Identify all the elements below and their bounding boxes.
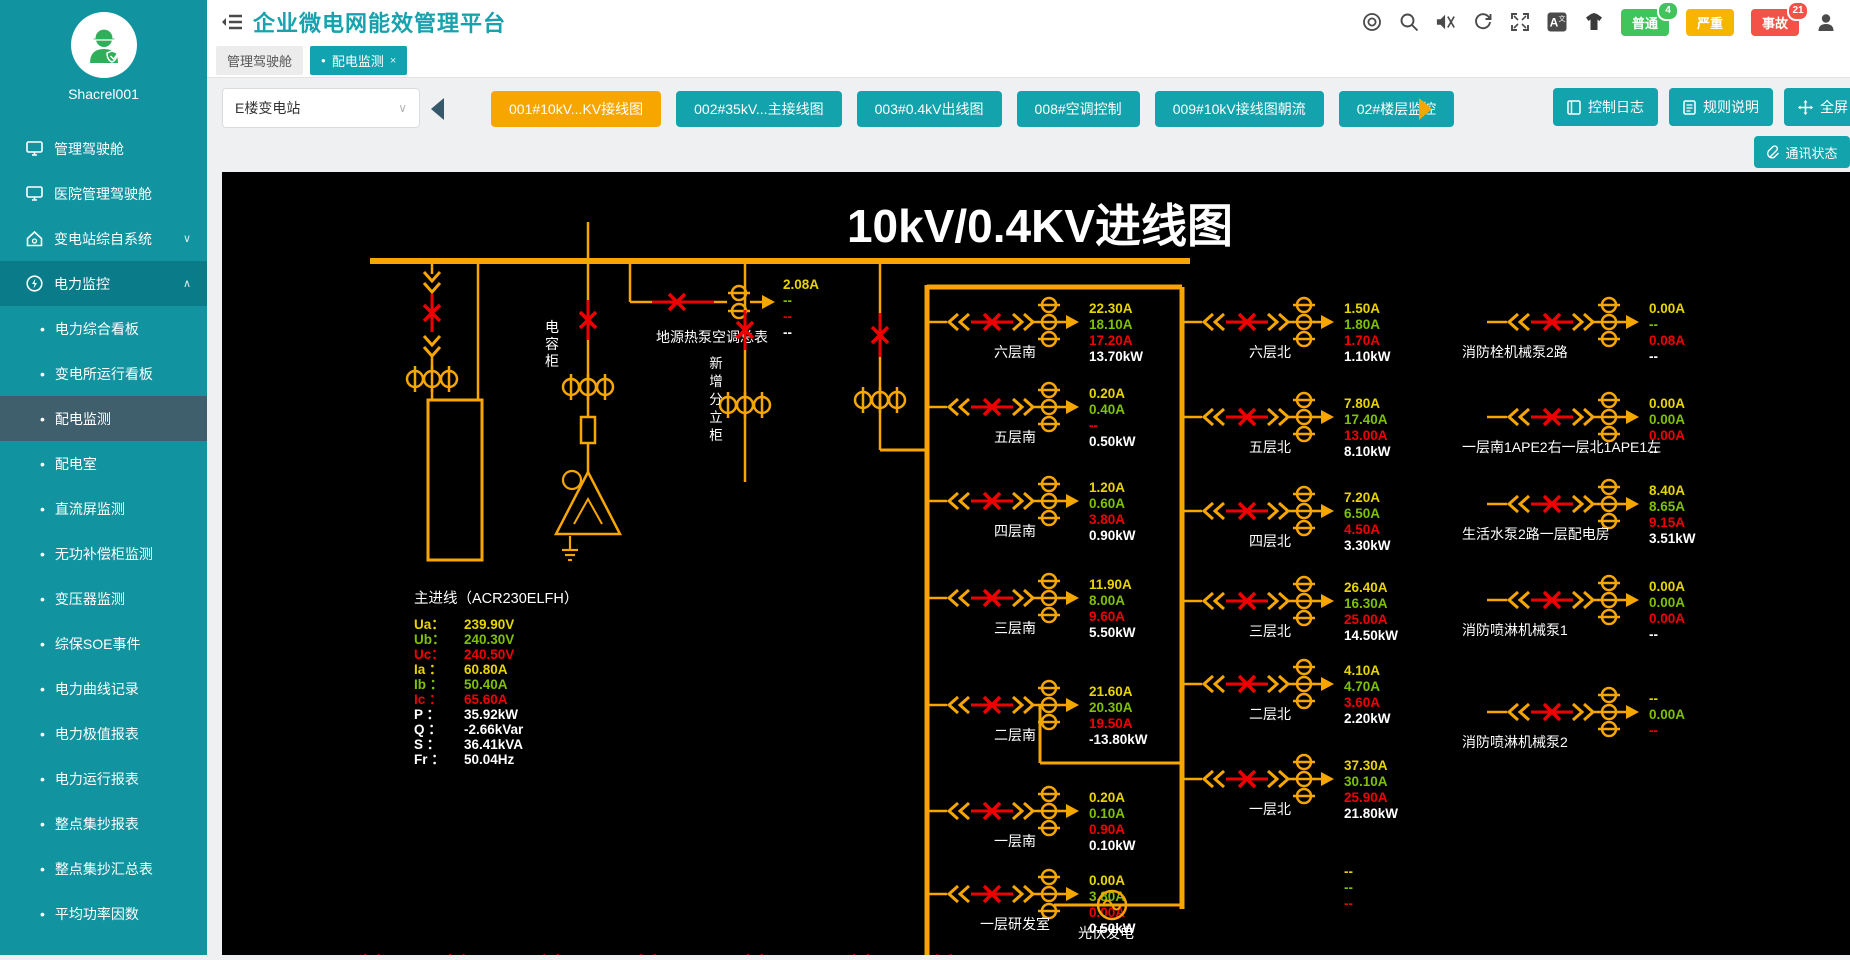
telemetry-value: 8.65A [1649, 499, 1685, 514]
sidebar-subitem-label: 电力曲线记录 [55, 679, 139, 699]
meter-title: 主进线（ACR230ELFH） [414, 590, 578, 607]
feeder-label: 六层南 [994, 344, 1036, 360]
meter-row-value: 240.50V [464, 647, 514, 662]
symbol [1204, 771, 1213, 787]
branch-label: 柜 [545, 353, 559, 369]
symbol [1024, 314, 1033, 330]
symbol [1509, 592, 1518, 608]
symbol [1013, 493, 1022, 509]
sidebar-item-label: 变电站综自系统 [54, 229, 152, 249]
telemetry-value: -- [783, 309, 792, 324]
meter-row-label: Fr ： [414, 752, 445, 767]
feeder-label: 二层南 [994, 727, 1036, 743]
station-select[interactable]: E楼变电站 ∨ [222, 88, 420, 128]
symbol [1024, 399, 1033, 415]
home-icon [26, 230, 43, 247]
telemetry-value: 0.00A [1649, 412, 1685, 427]
feeder-label: 五层北 [1249, 439, 1291, 455]
sidebar-subitem-直流屏监测[interactable]: •直流屏监测 [0, 486, 207, 531]
comm-status-button[interactable]: 通讯状态 [1754, 136, 1850, 168]
feeder-label: 生活水泵2路一层配电房 [1462, 526, 1610, 542]
sidebar: Shacrel001 管理驾驶舱医院管理驾驶舱变电站综自系统∨电力监控∧•电力综… [0, 0, 207, 955]
telemetry-value: 1.10kW [1344, 349, 1391, 364]
telemetry-value: 3.80A [1089, 512, 1125, 527]
sidebar-nav: 管理驾驶舱医院管理驾驶舱变电站综自系统∨电力监控∧•电力综合看板•变电所运行看板… [0, 126, 207, 936]
symbol [1573, 704, 1582, 720]
control-log-button[interactable]: 控制日志 [1553, 88, 1658, 126]
telemetry-value: -13.80kW [1089, 732, 1148, 747]
diagram-tab-002#35kV...主接线图[interactable]: 002#35kV...主接线图 [676, 91, 841, 127]
flow-arrow-icon [1321, 504, 1334, 518]
meter-row-value: 60.80A [464, 662, 508, 677]
alarm-badge-accident[interactable]: 事故 21 [1751, 9, 1799, 36]
symbol [424, 283, 440, 292]
telemetry-value: 25.00A [1344, 612, 1388, 627]
sidebar-subitem-label: 平均功率因数 [55, 904, 139, 924]
feeder-label: 六层北 [1249, 344, 1291, 360]
fullscreen-button[interactable]: 全屏 [1784, 88, 1850, 126]
toolbar-actions: 控制日志 规则说明 全屏 [1553, 88, 1850, 126]
telemetry-value: -- [1089, 418, 1098, 433]
flow-arrow-icon [1626, 705, 1639, 719]
meter-row-value: 65.60A [464, 692, 508, 707]
telemetry-value: 0.90A [1089, 822, 1125, 837]
flow-arrow-icon [1066, 804, 1079, 818]
header-actions: A 文 普通 4 严重 事故 21 [1362, 9, 1836, 36]
telemetry-value: 8.10kW [1344, 444, 1391, 459]
symbol [1509, 314, 1518, 330]
telemetry-value: -- [1649, 691, 1658, 706]
theme-shirt-icon[interactable] [1584, 12, 1604, 32]
sidebar-subitem-电力极值报表[interactable]: •电力极值报表 [0, 711, 207, 756]
symbol [1013, 399, 1022, 415]
sidebar-item-变电站综自系统[interactable]: 变电站综自系统∨ [0, 216, 207, 261]
symbol [1013, 697, 1022, 713]
sidebar-item-label: 管理驾驶舱 [54, 139, 124, 159]
sidebar-subitem-配电室[interactable]: •配电室 [0, 441, 207, 486]
worker-avatar-icon [82, 23, 126, 67]
meter-row-label: Ic ： [414, 692, 443, 707]
telemetry-value: 4.70A [1344, 679, 1380, 694]
telemetry-value: 0.00A [1649, 579, 1685, 594]
telemetry-value: 9.60A [1089, 609, 1125, 624]
symbol [960, 886, 969, 902]
dashboard-icon [26, 140, 43, 157]
bullet-icon: • [40, 906, 45, 922]
tabs-scroll-left-arrow[interactable] [431, 98, 444, 120]
menu-fold-icon[interactable] [221, 13, 243, 31]
branch-label: 增 [709, 374, 723, 389]
telemetry-value: -- [1344, 880, 1353, 895]
telemetry-value: 2.20kW [1344, 711, 1391, 726]
flow-arrow-icon [762, 295, 775, 309]
symbol [424, 347, 440, 356]
branch-label: 新 [709, 356, 723, 371]
telemetry-value: 13.70kW [1089, 349, 1143, 364]
symbol [1573, 409, 1582, 425]
alarm-count-accident: 21 [1787, 1, 1809, 21]
symbol [1584, 704, 1593, 720]
meter-row-label: Ib ： [414, 677, 443, 692]
meter-row-value: 239.90V [464, 617, 514, 632]
active-dot: ● [321, 56, 326, 65]
telemetry-value: 16.30A [1344, 596, 1388, 611]
symbol [960, 803, 969, 819]
symbol [574, 499, 602, 524]
telemetry-value: 37.30A [1344, 758, 1388, 773]
main-area: 企业微电网能效管理平台 [207, 0, 1850, 955]
sidebar-subitem-电力运行报表[interactable]: •电力运行报表 [0, 756, 207, 801]
telemetry-value: 20.30A [1089, 700, 1133, 715]
telemetry-value: 8.40A [1649, 483, 1685, 498]
telemetry-value: 17.40A [1344, 412, 1388, 427]
symbol [1268, 676, 1277, 692]
chevron-down-icon: ∨ [183, 232, 191, 245]
meter-row-value: 36.41kVA [464, 737, 523, 752]
chevron-up-icon: ∧ [183, 277, 191, 290]
bullet-icon: • [40, 726, 45, 742]
symbol [1024, 493, 1033, 509]
symbol [949, 314, 958, 330]
sidebar-item-管理驾驶舱[interactable]: 管理驾驶舱 [0, 126, 207, 171]
telemetry-value: 2.08A [783, 277, 819, 292]
meter-row-label: P ： [414, 707, 440, 722]
sidebar-subitem-label: 无功补偿柜监测 [55, 544, 153, 564]
sidebar-subitem-label: 配电监测 [55, 409, 111, 429]
diagram-tab-009#10kV接线图朝流[interactable]: 009#10kV接线图朝流 [1155, 91, 1324, 127]
username: Shacrel001 [0, 86, 207, 102]
telemetry-value: 0.00A [1649, 396, 1685, 411]
flow-arrow-icon [1626, 593, 1639, 607]
feeder-label: 一层北 [1249, 801, 1291, 817]
sidebar-subitem-平均功率因数[interactable]: •平均功率因数 [0, 891, 207, 936]
flow-arrow-icon [1066, 698, 1079, 712]
telemetry-value: -- [1344, 896, 1353, 911]
feeder-label: 三层南 [994, 620, 1036, 636]
symbol [1520, 409, 1529, 425]
symbol [1215, 503, 1224, 519]
branch-label: 立 [709, 410, 723, 425]
sidebar-item-医院管理驾驶舱[interactable]: 医院管理驾驶舱 [0, 171, 207, 216]
power-icon [26, 275, 43, 292]
telemetry-value: 0.40A [1089, 402, 1125, 417]
feeder-label: 消防喷淋机械泵1 [1462, 622, 1568, 638]
flow-arrow-icon [1626, 497, 1639, 511]
bullet-icon: • [40, 771, 45, 787]
telemetry-value: 7.20A [1344, 490, 1380, 505]
sidebar-item-label: 医院管理驾驶舱 [54, 184, 152, 204]
telemetry-value: 0.00A [1649, 595, 1685, 610]
telemetry-value: 0.00A [1649, 301, 1685, 316]
telemetry-value: 21.80kW [1344, 806, 1398, 821]
symbol [1573, 592, 1582, 608]
meter-row-label: Q ： [414, 722, 442, 737]
telemetry-value: 17.20A [1089, 333, 1133, 348]
symbol [1573, 496, 1582, 512]
diagram-tab-003#0.4kV出线图[interactable]: 003#0.4kV出线图 [857, 91, 1002, 127]
telemetry-value: 3.60A [1344, 695, 1380, 710]
symbol [1268, 771, 1277, 787]
workspace-tabs: 管理驾驶舱 ● 配电监测 × [207, 44, 1850, 78]
symbol [1215, 593, 1224, 609]
close-tab-icon[interactable]: × [390, 55, 396, 67]
symbol [1584, 314, 1593, 330]
sidebar-subitem-label: 变压器监测 [55, 589, 125, 609]
meter-row-value: -2.66kVar [464, 722, 524, 737]
diagram-title: 10kV/0.4KV进线图 [847, 200, 1233, 252]
bullet-icon: • [40, 861, 45, 877]
meter-row-value: 50.40A [464, 677, 508, 692]
flow-arrow-icon [1066, 315, 1079, 329]
telemetry-value: 0.20A [1089, 790, 1125, 805]
telemetry-value: -- [1344, 864, 1353, 879]
symbol [1584, 592, 1593, 608]
winding-symbol [563, 471, 581, 489]
symbol [949, 399, 958, 415]
symbol [1268, 503, 1277, 519]
feeder-label: 消防栓机械泵2路 [1462, 344, 1568, 360]
feeder-label: 一层研发室 [980, 916, 1050, 932]
telemetry-value: 4.10A [1344, 663, 1380, 678]
telemetry-value: 25.90A [1344, 790, 1388, 805]
symbol [1573, 314, 1582, 330]
symbol [960, 493, 969, 509]
svg-text:A: A [1550, 16, 1559, 30]
meter-row-label: Ua： [414, 617, 445, 632]
telemetry-value: 0.20A [1089, 386, 1125, 401]
telemetry-value: 6.50A [1344, 506, 1380, 521]
sidebar-subitem-label: 直流屏监测 [55, 499, 125, 519]
symbol [1013, 803, 1022, 819]
telemetry-value: -- [783, 325, 792, 340]
cabinet-box [428, 400, 482, 560]
symbol [1520, 314, 1529, 330]
symbol [1024, 590, 1033, 606]
symbol [1024, 697, 1033, 713]
tabs-scroll-right-arrow[interactable] [1419, 98, 1432, 120]
telemetry-value: 18.10A [1089, 317, 1133, 332]
flow-arrow-icon [1321, 410, 1334, 424]
symbol [1215, 676, 1224, 692]
telemetry-value: 0.90kW [1089, 528, 1136, 543]
sidebar-subitem-整点集抄报表[interactable]: •整点集抄报表 [0, 801, 207, 846]
sidebar-subitem-配电监测[interactable]: •配电监测 [0, 396, 207, 441]
branch-label: 分 [709, 392, 723, 407]
avatar[interactable] [71, 12, 137, 78]
fuse-symbol [581, 417, 595, 443]
sidebar-subitem-label: 配电室 [55, 454, 97, 474]
symbol [1215, 409, 1224, 425]
meter-row-label: Uc： [414, 647, 445, 662]
symbol [1279, 676, 1288, 692]
telemetry-value: 3.30kW [1344, 538, 1391, 553]
telemetry-value: 0.00A [1649, 707, 1685, 722]
telemetry-value: 8.00A [1089, 593, 1125, 608]
telemetry-value: 1.20A [1089, 480, 1125, 495]
diagram-tab-001#10kV...KV接线图[interactable]: 001#10kV...KV接线图 [491, 91, 661, 127]
symbol [1279, 314, 1288, 330]
meter-row-value: 50.04Hz [464, 752, 515, 767]
flow-arrow-icon [1321, 315, 1334, 329]
flow-arrow-icon [1066, 400, 1079, 414]
bullet-icon: • [40, 456, 45, 472]
telemetry-value: 9.15A [1649, 515, 1685, 530]
record-icon[interactable] [1362, 12, 1382, 32]
telemetry-value: 0.00A [1089, 873, 1125, 888]
diagram-canvas: 10kV/0.4KV进线图电容柜2.08A------地源热泵空调总表新增分立柜… [222, 172, 1850, 955]
diagram-tab-02#楼层监控[interactable]: 02#楼层监控 [1339, 91, 1454, 127]
symbol [949, 493, 958, 509]
meter-row-value: 35.92kW [464, 707, 518, 722]
single-line-diagram: 10kV/0.4KV进线图电容柜2.08A------地源热泵空调总表新增分立柜… [222, 172, 1850, 955]
branch-label: 容 [545, 336, 559, 352]
feeder-label: 光伏发电 [1078, 925, 1134, 941]
meter-row-value: 240.30V [464, 632, 514, 647]
feeder-label: 四层南 [994, 523, 1036, 539]
sidebar-subitem-无功补偿柜监测[interactable]: •无功补偿柜监测 [0, 531, 207, 576]
symbol [1204, 593, 1213, 609]
symbol [949, 886, 958, 902]
rules-button[interactable]: 规则说明 [1669, 88, 1773, 126]
telemetry-value: -- [783, 293, 792, 308]
sidebar-subitem-综保SOE事件[interactable]: •综保SOE事件 [0, 621, 207, 666]
sidebar-subitem-label: 电力极值报表 [55, 724, 139, 744]
meter-row-label: S ： [414, 737, 440, 752]
telemetry-value: 0.50kW [1089, 434, 1136, 449]
sidebar-item-电力监控[interactable]: 电力监控∧ [0, 261, 207, 306]
expand-icon [1798, 100, 1813, 115]
symbol [1509, 496, 1518, 512]
fullscreen-icon[interactable] [1510, 12, 1530, 32]
flow-arrow-icon [1321, 772, 1334, 786]
sidebar-subitem-变电所运行看板[interactable]: •变电所运行看板 [0, 351, 207, 396]
symbol [949, 697, 958, 713]
sidebar-subitem-label: 电力运行报表 [55, 769, 139, 789]
flow-arrow-icon [1321, 677, 1334, 691]
app-title: 企业微电网能效管理平台 [253, 6, 506, 38]
symbol [1509, 409, 1518, 425]
sidebar-subitem-label: 整点集抄报表 [55, 814, 139, 834]
sidebar-subitem-电力综合看板[interactable]: •电力综合看板 [0, 306, 207, 351]
symbol [556, 472, 620, 534]
svg-text:文: 文 [1558, 14, 1565, 23]
telemetry-value: 5.50kW [1089, 625, 1136, 640]
symbol [1204, 409, 1213, 425]
telemetry-value: 19.50A [1089, 716, 1133, 731]
symbol [1520, 496, 1529, 512]
telemetry-value: 13.00A [1344, 428, 1388, 443]
symbol [1204, 676, 1213, 692]
bullet-icon: • [40, 321, 45, 337]
sidebar-subitem-电力曲线记录[interactable]: •电力曲线记录 [0, 666, 207, 711]
bullet-icon: • [40, 411, 45, 427]
telemetry-value: -- [1649, 627, 1658, 642]
sidebar-subitem-label: 变电所运行看板 [55, 364, 153, 384]
alarm-badge-normal[interactable]: 普通 4 [1621, 9, 1669, 36]
bullet-icon: • [40, 816, 45, 832]
symbol [1024, 886, 1033, 902]
symbol [1279, 771, 1288, 787]
symbol [1584, 409, 1593, 425]
doc-icon [1683, 100, 1696, 115]
symbol [1520, 592, 1529, 608]
telemetry-value: 0.60A [1089, 496, 1125, 511]
sidebar-subitem-整点集抄汇总表[interactable]: •整点集抄汇总表 [0, 846, 207, 891]
user-icon[interactable] [1816, 12, 1836, 32]
symbol [1013, 314, 1022, 330]
feeder-label: 四层北 [1249, 533, 1291, 549]
feeder-label: 消防喷淋机械泵2 [1462, 734, 1568, 750]
link-icon [1766, 145, 1779, 159]
symbol [1584, 496, 1593, 512]
feeder-label: 一层南1APE2右一层北1APE1左 [1462, 439, 1661, 455]
bullet-icon: • [40, 366, 45, 382]
bullet-icon: • [40, 546, 45, 562]
translate-icon[interactable]: A 文 [1547, 12, 1567, 32]
bullet-icon: • [40, 681, 45, 697]
meter-row-label: Ub： [414, 632, 446, 647]
dashboard-icon [26, 185, 43, 202]
bullet-icon: • [40, 591, 45, 607]
symbol [1215, 771, 1224, 787]
telemetry-value: -- [1649, 349, 1658, 364]
branch-label: 柜 [709, 428, 723, 443]
telemetry-value: 0.10A [1089, 806, 1125, 821]
symbol [960, 399, 969, 415]
alarm-count-normal: 4 [1657, 1, 1679, 21]
symbol [1204, 503, 1213, 519]
telemetry-value: -- [1649, 317, 1658, 332]
search-icon[interactable] [1399, 12, 1419, 32]
flow-arrow-icon [1066, 591, 1079, 605]
telemetry-value: 0.10kW [1089, 838, 1136, 853]
flow-arrow-icon [1321, 594, 1334, 608]
telemetry-value: 30.10A [1344, 774, 1388, 789]
symbol [424, 336, 440, 345]
symbol [1215, 314, 1224, 330]
telemetry-value: 11.90A [1089, 577, 1132, 592]
bullet-icon: • [40, 636, 45, 652]
symbol [1279, 409, 1288, 425]
telemetry-value: 21.60A [1089, 684, 1133, 699]
telemetry-value: -- [1649, 723, 1658, 738]
symbol [1013, 886, 1022, 902]
diagram-tab-008#空调控制[interactable]: 008#空调控制 [1017, 91, 1140, 127]
symbol [1268, 409, 1277, 425]
telemetry-value: 26.40A [1344, 580, 1388, 595]
alarm-badge-serious[interactable]: 严重 [1686, 9, 1734, 36]
tab-distribution-monitoring[interactable]: ● 配电监测 × [310, 46, 407, 75]
refresh-icon[interactable] [1473, 12, 1493, 32]
telemetry-value: 3.51kW [1649, 531, 1696, 546]
telemetry-value: 22.30A [1089, 301, 1133, 316]
flow-arrow-icon [1626, 315, 1639, 329]
telemetry-value: 0.08A [1649, 333, 1685, 348]
feeder-label: 二层北 [1249, 706, 1291, 722]
feeder-label: 一层南 [994, 833, 1036, 849]
sidebar-subitem-变压器监测[interactable]: •变压器监测 [0, 576, 207, 621]
telemetry-value: 0.00A [1649, 611, 1685, 626]
sidebar-subitem-label: 电力综合看板 [55, 319, 139, 339]
flow-arrow-icon [1066, 887, 1079, 901]
sound-off-icon[interactable] [1436, 12, 1456, 32]
symbol [1268, 593, 1277, 609]
chevron-down-icon: ∨ [398, 101, 407, 115]
feeder-label: 三层北 [1249, 623, 1291, 639]
tab-management-cockpit[interactable]: 管理驾驶舱 [216, 46, 303, 75]
telemetry-value: 1.80A [1344, 317, 1380, 332]
symbol [1268, 314, 1277, 330]
